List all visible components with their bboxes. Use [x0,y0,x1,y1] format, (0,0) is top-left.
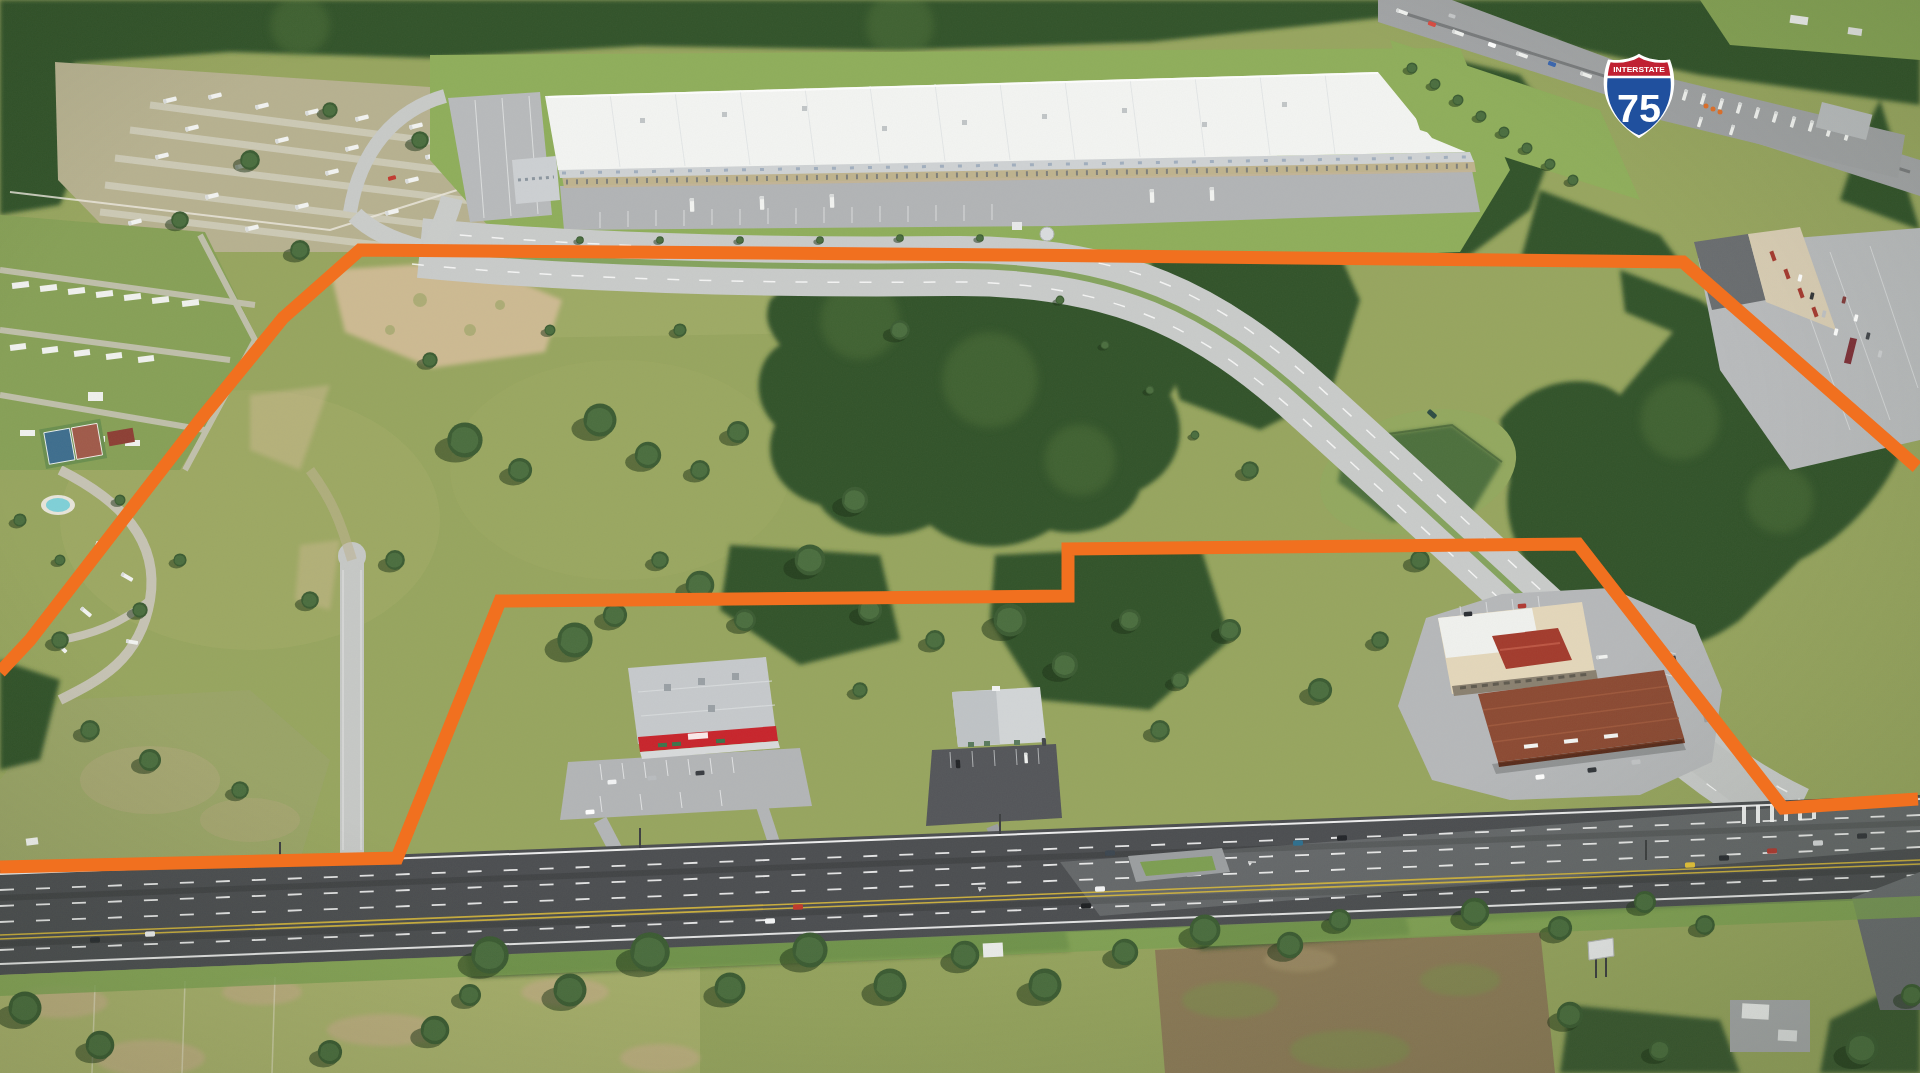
aerial-photo-page: INTERSTATE 75 [0,0,1920,1073]
shield-interstate-label: INTERSTATE [1613,65,1665,74]
shield-route-number: 75 [1617,86,1661,130]
aerial-photo: INTERSTATE 75 [0,0,1920,1073]
vignette [0,0,1920,1073]
